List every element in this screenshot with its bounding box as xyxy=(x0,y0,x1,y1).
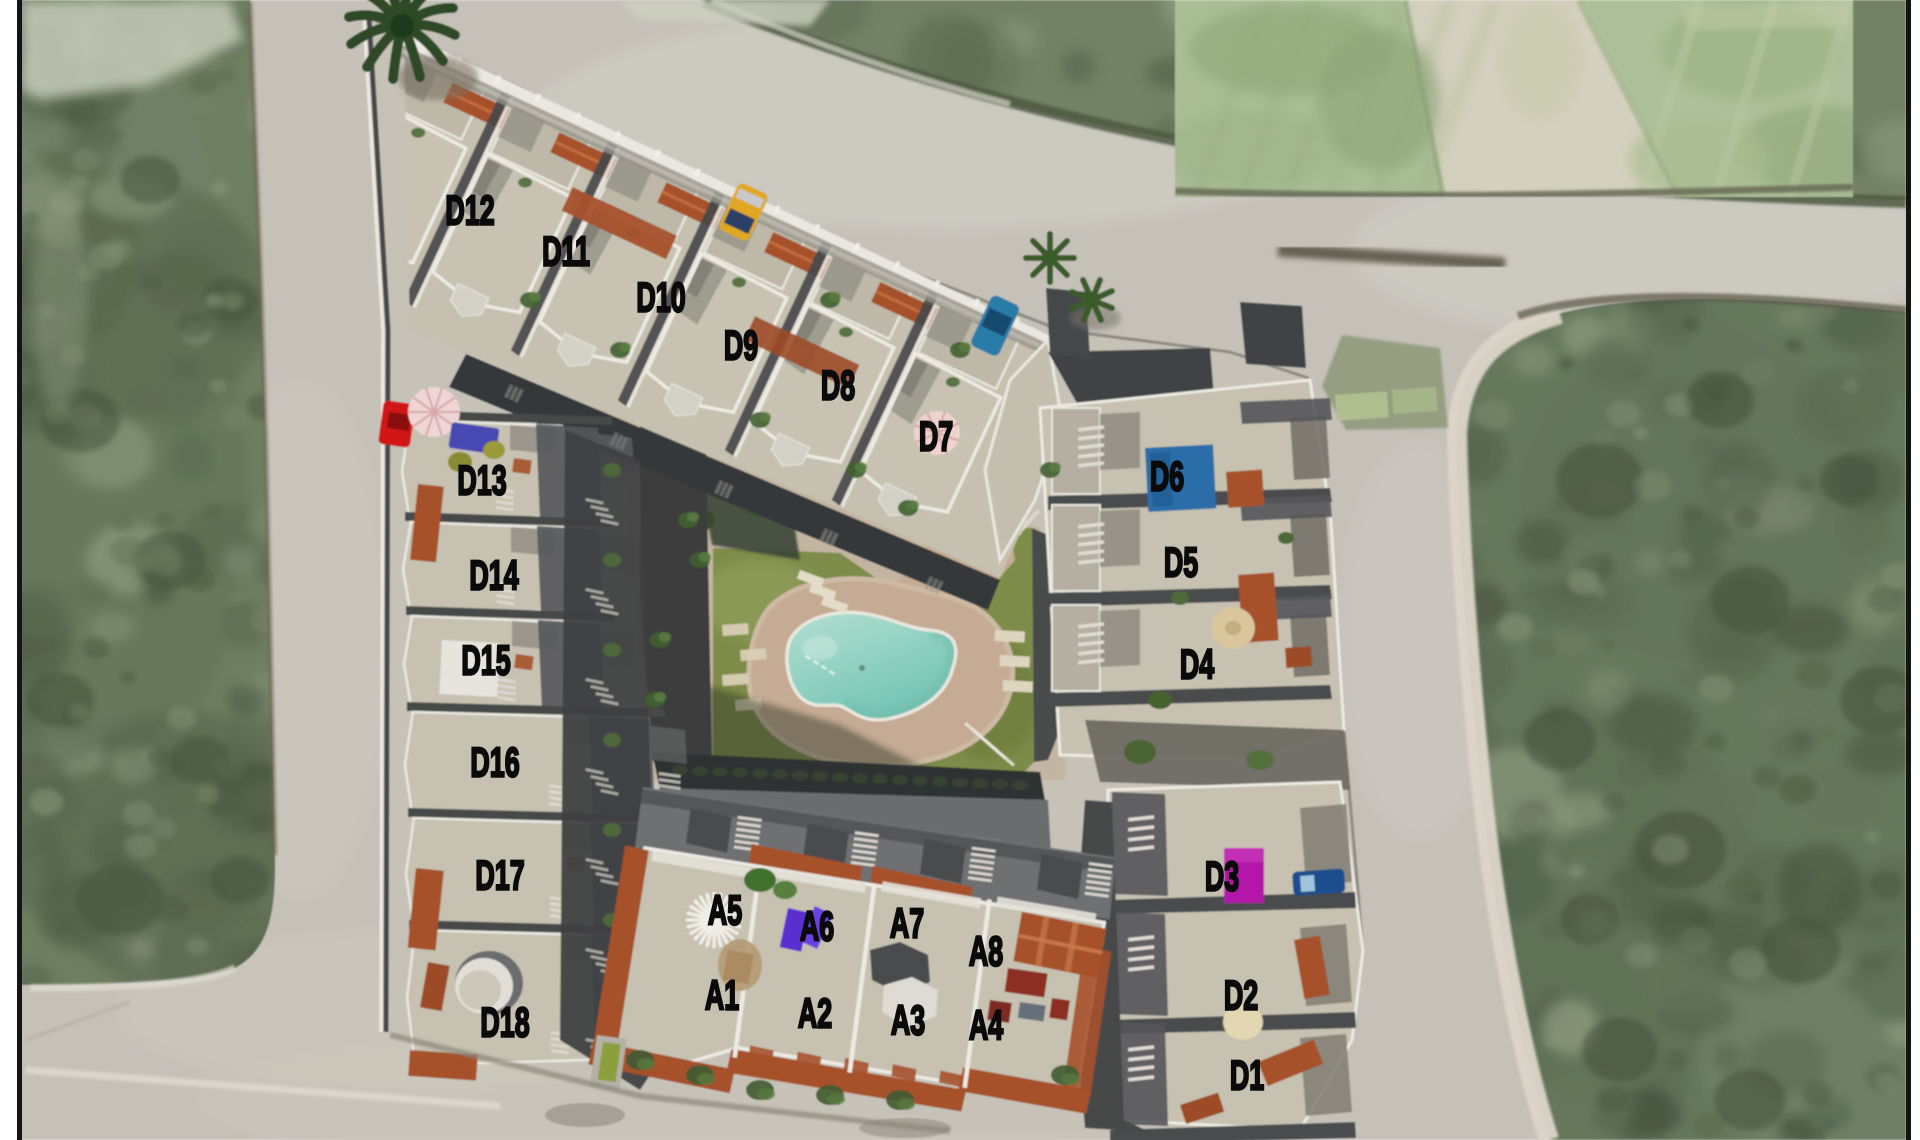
svg-text:D9: D9 xyxy=(724,323,758,369)
svg-text:D18: D18 xyxy=(480,1000,529,1046)
svg-text:A5: A5 xyxy=(708,888,742,934)
svg-text:D6: D6 xyxy=(1150,454,1184,500)
svg-text:D7: D7 xyxy=(919,414,953,460)
svg-text:D3: D3 xyxy=(1205,854,1239,900)
svg-text:A2: A2 xyxy=(798,991,832,1037)
svg-text:A7: A7 xyxy=(890,901,924,947)
svg-text:A8: A8 xyxy=(969,929,1003,975)
svg-text:D16: D16 xyxy=(470,740,519,786)
svg-text:D15: D15 xyxy=(461,638,510,684)
svg-text:D8: D8 xyxy=(821,363,855,409)
svg-text:D12: D12 xyxy=(445,188,494,234)
svg-text:D10: D10 xyxy=(636,275,685,321)
svg-text:D14: D14 xyxy=(469,553,519,599)
svg-text:D13: D13 xyxy=(457,458,506,504)
svg-text:A6: A6 xyxy=(800,904,834,950)
svg-text:D2: D2 xyxy=(1224,973,1258,1019)
svg-text:A4: A4 xyxy=(969,1003,1004,1049)
svg-text:D4: D4 xyxy=(1180,642,1215,688)
svg-text:D5: D5 xyxy=(1164,540,1198,586)
svg-text:D1: D1 xyxy=(1230,1053,1264,1099)
svg-text:D17: D17 xyxy=(475,853,524,899)
svg-text:A3: A3 xyxy=(891,998,925,1044)
svg-text:A1: A1 xyxy=(705,973,739,1019)
svg-text:D11: D11 xyxy=(542,229,590,275)
